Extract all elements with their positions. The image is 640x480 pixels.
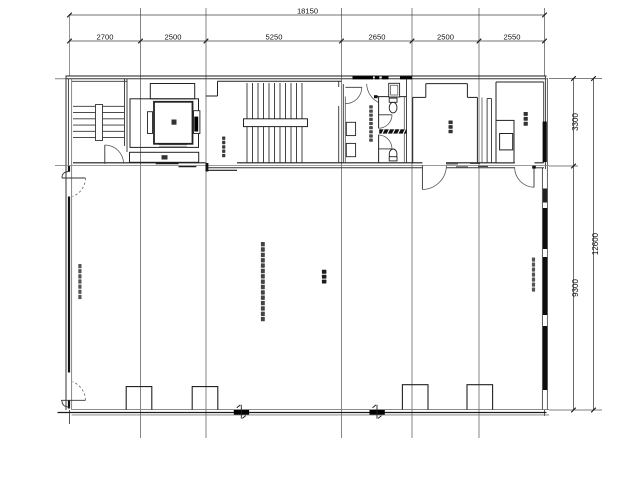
svg-text:2500: 2500 bbox=[437, 32, 454, 41]
svg-text:9300: 9300 bbox=[571, 279, 580, 297]
svg-text:12600: 12600 bbox=[591, 232, 600, 255]
svg-text:5250: 5250 bbox=[266, 32, 283, 41]
svg-text:2500: 2500 bbox=[165, 32, 182, 41]
svg-text:3300: 3300 bbox=[571, 113, 580, 131]
svg-text:2550: 2550 bbox=[504, 32, 521, 41]
svg-text:18150: 18150 bbox=[297, 6, 318, 15]
svg-text:2650: 2650 bbox=[369, 32, 386, 41]
svg-text:2700: 2700 bbox=[97, 32, 114, 41]
